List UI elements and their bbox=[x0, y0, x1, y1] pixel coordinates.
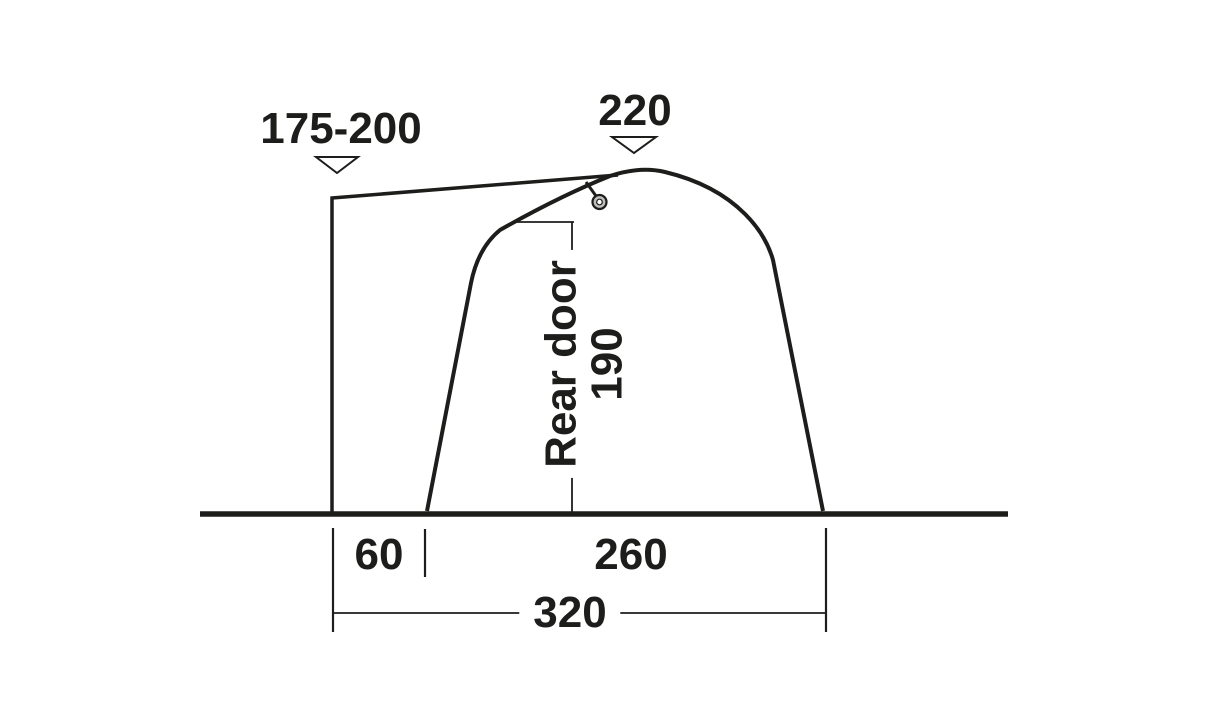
rear-door-label-block: Rear door 190 bbox=[534, 250, 634, 478]
height-label-220: 220 bbox=[598, 89, 671, 133]
down-triangle-marker-left bbox=[316, 157, 358, 173]
width-label-260: 260 bbox=[594, 533, 667, 577]
down-triangle-marker-peak bbox=[612, 137, 656, 153]
width-label-60: 60 bbox=[355, 533, 404, 577]
height-label-175-200: 175-200 bbox=[260, 107, 421, 151]
hook-ring-icon bbox=[586, 182, 607, 209]
tent-dimension-diagram: 175-200 220 Rear door 190 60 260 320 bbox=[0, 0, 1230, 724]
rear-door-height-label: 190 bbox=[584, 260, 630, 468]
width-label-320: 320 bbox=[519, 591, 620, 635]
rear-door-label: Rear door bbox=[538, 260, 584, 468]
